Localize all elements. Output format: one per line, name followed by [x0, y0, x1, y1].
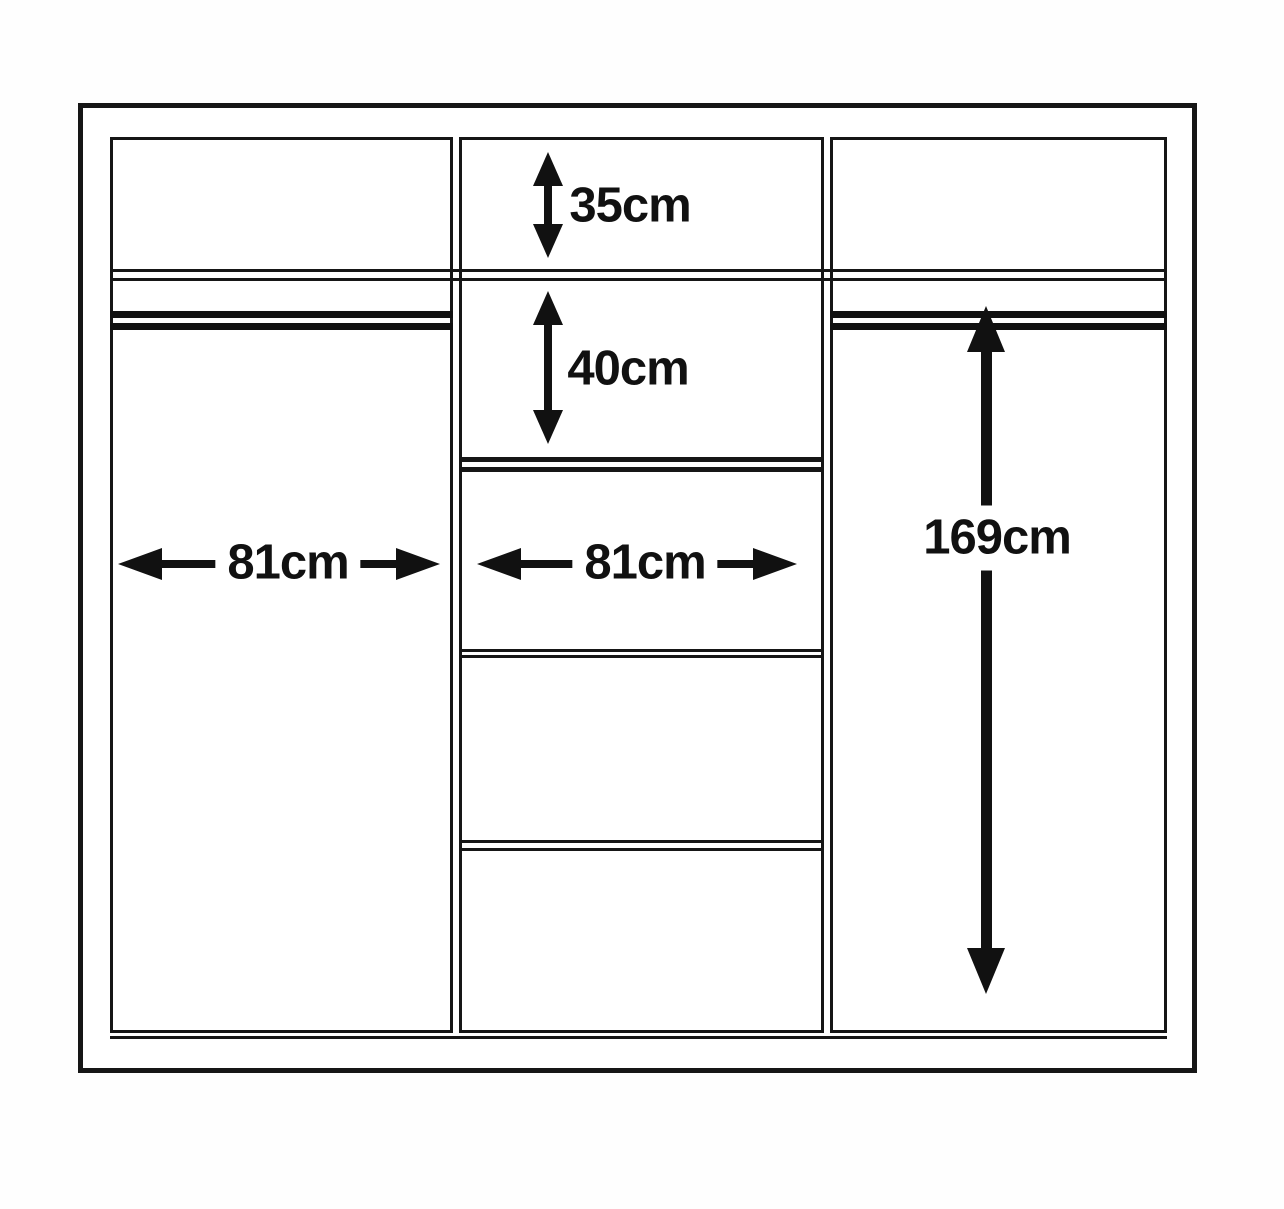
dim-label-81cm-left: 81cm [215, 531, 360, 596]
arrowhead-down-icon [533, 224, 563, 258]
dim-label-40cm: 40cm [567, 345, 688, 394]
arrowhead-right-icon [396, 548, 440, 580]
base-line [110, 1036, 1167, 1039]
arrow-stem [544, 184, 552, 226]
arrow-stem [544, 323, 552, 412]
arrowhead-left-icon [477, 548, 521, 580]
wardrobe-dimension-diagram: 35cm 40cm 81cm 81cm 169cm [0, 0, 1284, 1209]
middle-divider-3-upper [459, 840, 824, 843]
arrowhead-down-icon [967, 948, 1005, 994]
arrowhead-up-icon [533, 291, 563, 325]
hanging-rail-left-upper [110, 311, 453, 318]
middle-divider-1-upper [459, 457, 824, 462]
dim-label-35cm: 35cm [569, 182, 690, 231]
arrowhead-up-icon [533, 152, 563, 186]
middle-divider-1-lower [459, 467, 824, 472]
hanging-rail-left-lower [110, 323, 453, 330]
arrowhead-right-icon [753, 548, 797, 580]
top-shelf-line-lower [110, 278, 1167, 281]
dim-label-81cm-middle: 81cm [572, 531, 717, 596]
middle-divider-2-upper [459, 649, 824, 652]
middle-divider-3-lower [459, 848, 824, 851]
middle-divider-2-lower [459, 655, 824, 658]
top-shelf-line-upper [110, 269, 1167, 272]
arrow-stem [981, 350, 992, 950]
dim-label-169cm: 169cm [911, 506, 1083, 571]
arrowhead-up-icon [967, 306, 1005, 352]
arrowhead-down-icon [533, 410, 563, 444]
arrowhead-left-icon [118, 548, 162, 580]
